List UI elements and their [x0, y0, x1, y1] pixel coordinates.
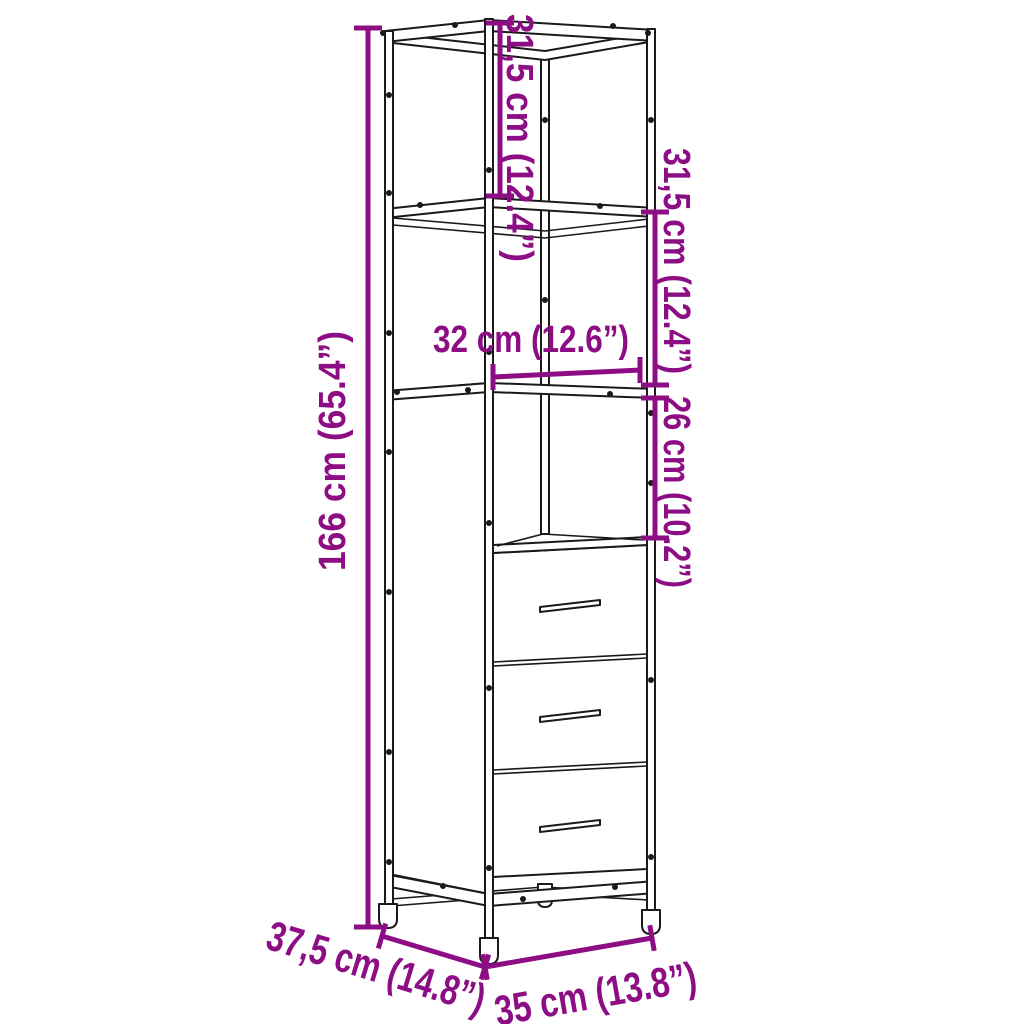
shelf2-right-band	[489, 383, 655, 398]
left-side-panel	[389, 383, 489, 894]
shelf1-left-band	[385, 198, 489, 218]
rear-left-post	[385, 31, 393, 907]
dim-inner-width-label: 32 cm (12.6”)	[433, 319, 629, 361]
product-dimension-diagram: 166 cm (65.4”) 31,5 cm (12.4”) 31,5 cm (…	[0, 0, 1024, 1024]
dim-width-label: 35 cm (13.8”)	[491, 953, 700, 1024]
back-post	[541, 52, 549, 534]
dim-second-section-label: 31,5 cm (12.4”)	[655, 148, 697, 374]
diagram-canvas: 166 cm (65.4”) 31,5 cm (12.4”) 31,5 cm (…	[0, 0, 1024, 1024]
dim-inner-width: 32 cm (12.6”)	[433, 319, 640, 390]
dim-width: 35 cm (13.8”)	[483, 925, 700, 1024]
dim-height: 166 cm (65.4”)	[312, 28, 382, 927]
dim-compartment-label: 26 cm (10.2”)	[655, 396, 697, 588]
dim-height-line	[354, 28, 382, 927]
base-right-band	[489, 881, 655, 906]
front-post	[485, 19, 493, 940]
dim-height-label: 166 cm (65.4”)	[312, 331, 354, 571]
dim-top-section-label: 31,5 cm (12.4”)	[498, 14, 540, 262]
